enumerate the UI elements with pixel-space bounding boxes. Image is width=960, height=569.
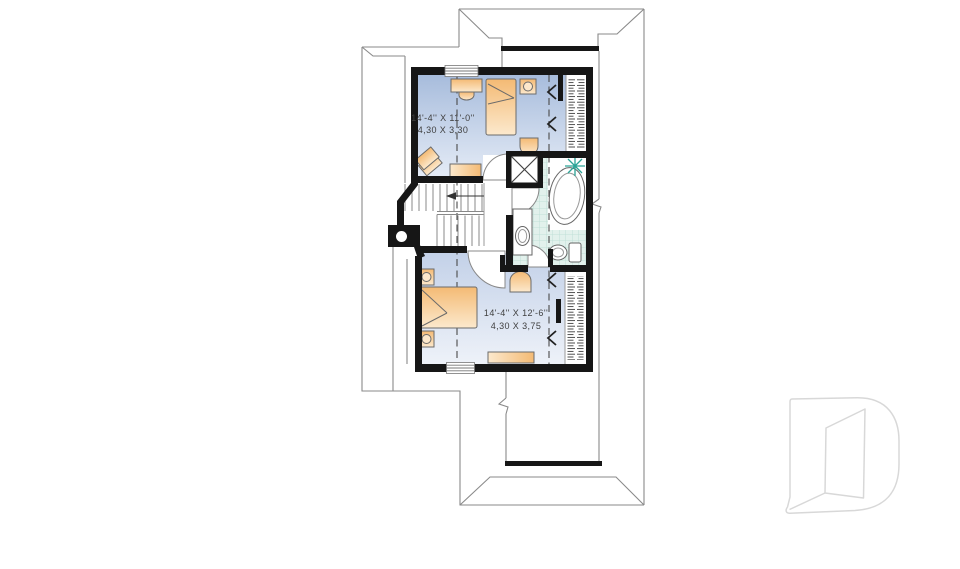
lamp-2a [422, 273, 431, 282]
closet-1-hatch [569, 78, 585, 148]
bed-2 [419, 287, 477, 328]
toilet-tank [569, 243, 581, 262]
upper-dormer-wall [501, 46, 599, 51]
bottom-wall-right [474, 364, 593, 372]
armchair-2 [510, 272, 531, 293]
bedroom2-dimension-metric: 4,30 X 3,75 [491, 321, 541, 331]
break-mark-bottom [499, 398, 508, 414]
vanity-sink-basin [518, 230, 526, 243]
drummond-d-logo [786, 398, 899, 513]
right-wall [586, 67, 593, 372]
closet-2-hatch [568, 276, 584, 360]
bath-wall-stub-mid [548, 249, 553, 267]
window-bottom [447, 363, 475, 374]
dresser-1 [450, 164, 481, 177]
bedroom1-dimension-metric: 4,30 X 3,30 [418, 125, 468, 135]
knee-wall-segment-top [558, 74, 563, 101]
bed-1 [486, 79, 516, 135]
starburst-plant-icon [565, 156, 585, 176]
desk [451, 79, 482, 92]
logo-door-cutout [825, 409, 865, 498]
bedroom-1-partition-wall [411, 176, 483, 183]
upper-dormer-roof [459, 9, 644, 47]
bedroom-2-partition-wall [420, 246, 467, 253]
break-mark-right [592, 199, 601, 213]
bath-bottom-wall-right [550, 265, 593, 272]
bath-wall-stub-left [500, 255, 505, 267]
hall-bath-wall [506, 215, 513, 272]
desk-chair [459, 92, 474, 100]
lower-dormer-roof [460, 477, 644, 505]
knee-wall-segment-bottom [556, 299, 561, 323]
lamp-1 [524, 82, 533, 91]
logo-wedge-line [790, 493, 826, 510]
top-wall-right [478, 67, 593, 75]
bedroom1-dimension-imperial: 14'-4'' X 11'-0'' [411, 113, 474, 123]
window-top [445, 66, 478, 77]
chimney-flue [396, 231, 407, 242]
bedroom2-dimension-imperial: 14'-4'' X 12'-6'' [484, 308, 548, 318]
shaft-x-box [506, 151, 543, 188]
dresser-2 [488, 352, 534, 363]
lamp-2b [422, 335, 431, 344]
bay-wall-vertical [397, 201, 404, 227]
floor-plan-page: 14'-4'' X 11'-0'' 4,30 X 3,30 14'-4'' X … [0, 0, 960, 569]
closet-bath-divider-wall [543, 151, 593, 158]
floor-plan-drawing: 14'-4'' X 11'-0'' 4,30 X 3,30 14'-4'' X … [0, 0, 960, 569]
lower-dormer-wall [505, 461, 602, 466]
left-wall-lower [415, 256, 422, 372]
